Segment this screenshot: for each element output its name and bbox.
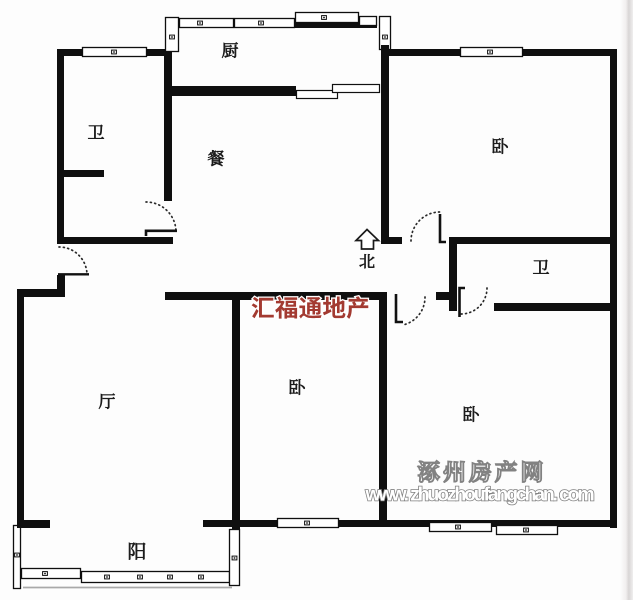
svg-text:www. zhuozhoufangchan. com: www. zhuozhoufangchan. com bbox=[365, 484, 595, 506]
